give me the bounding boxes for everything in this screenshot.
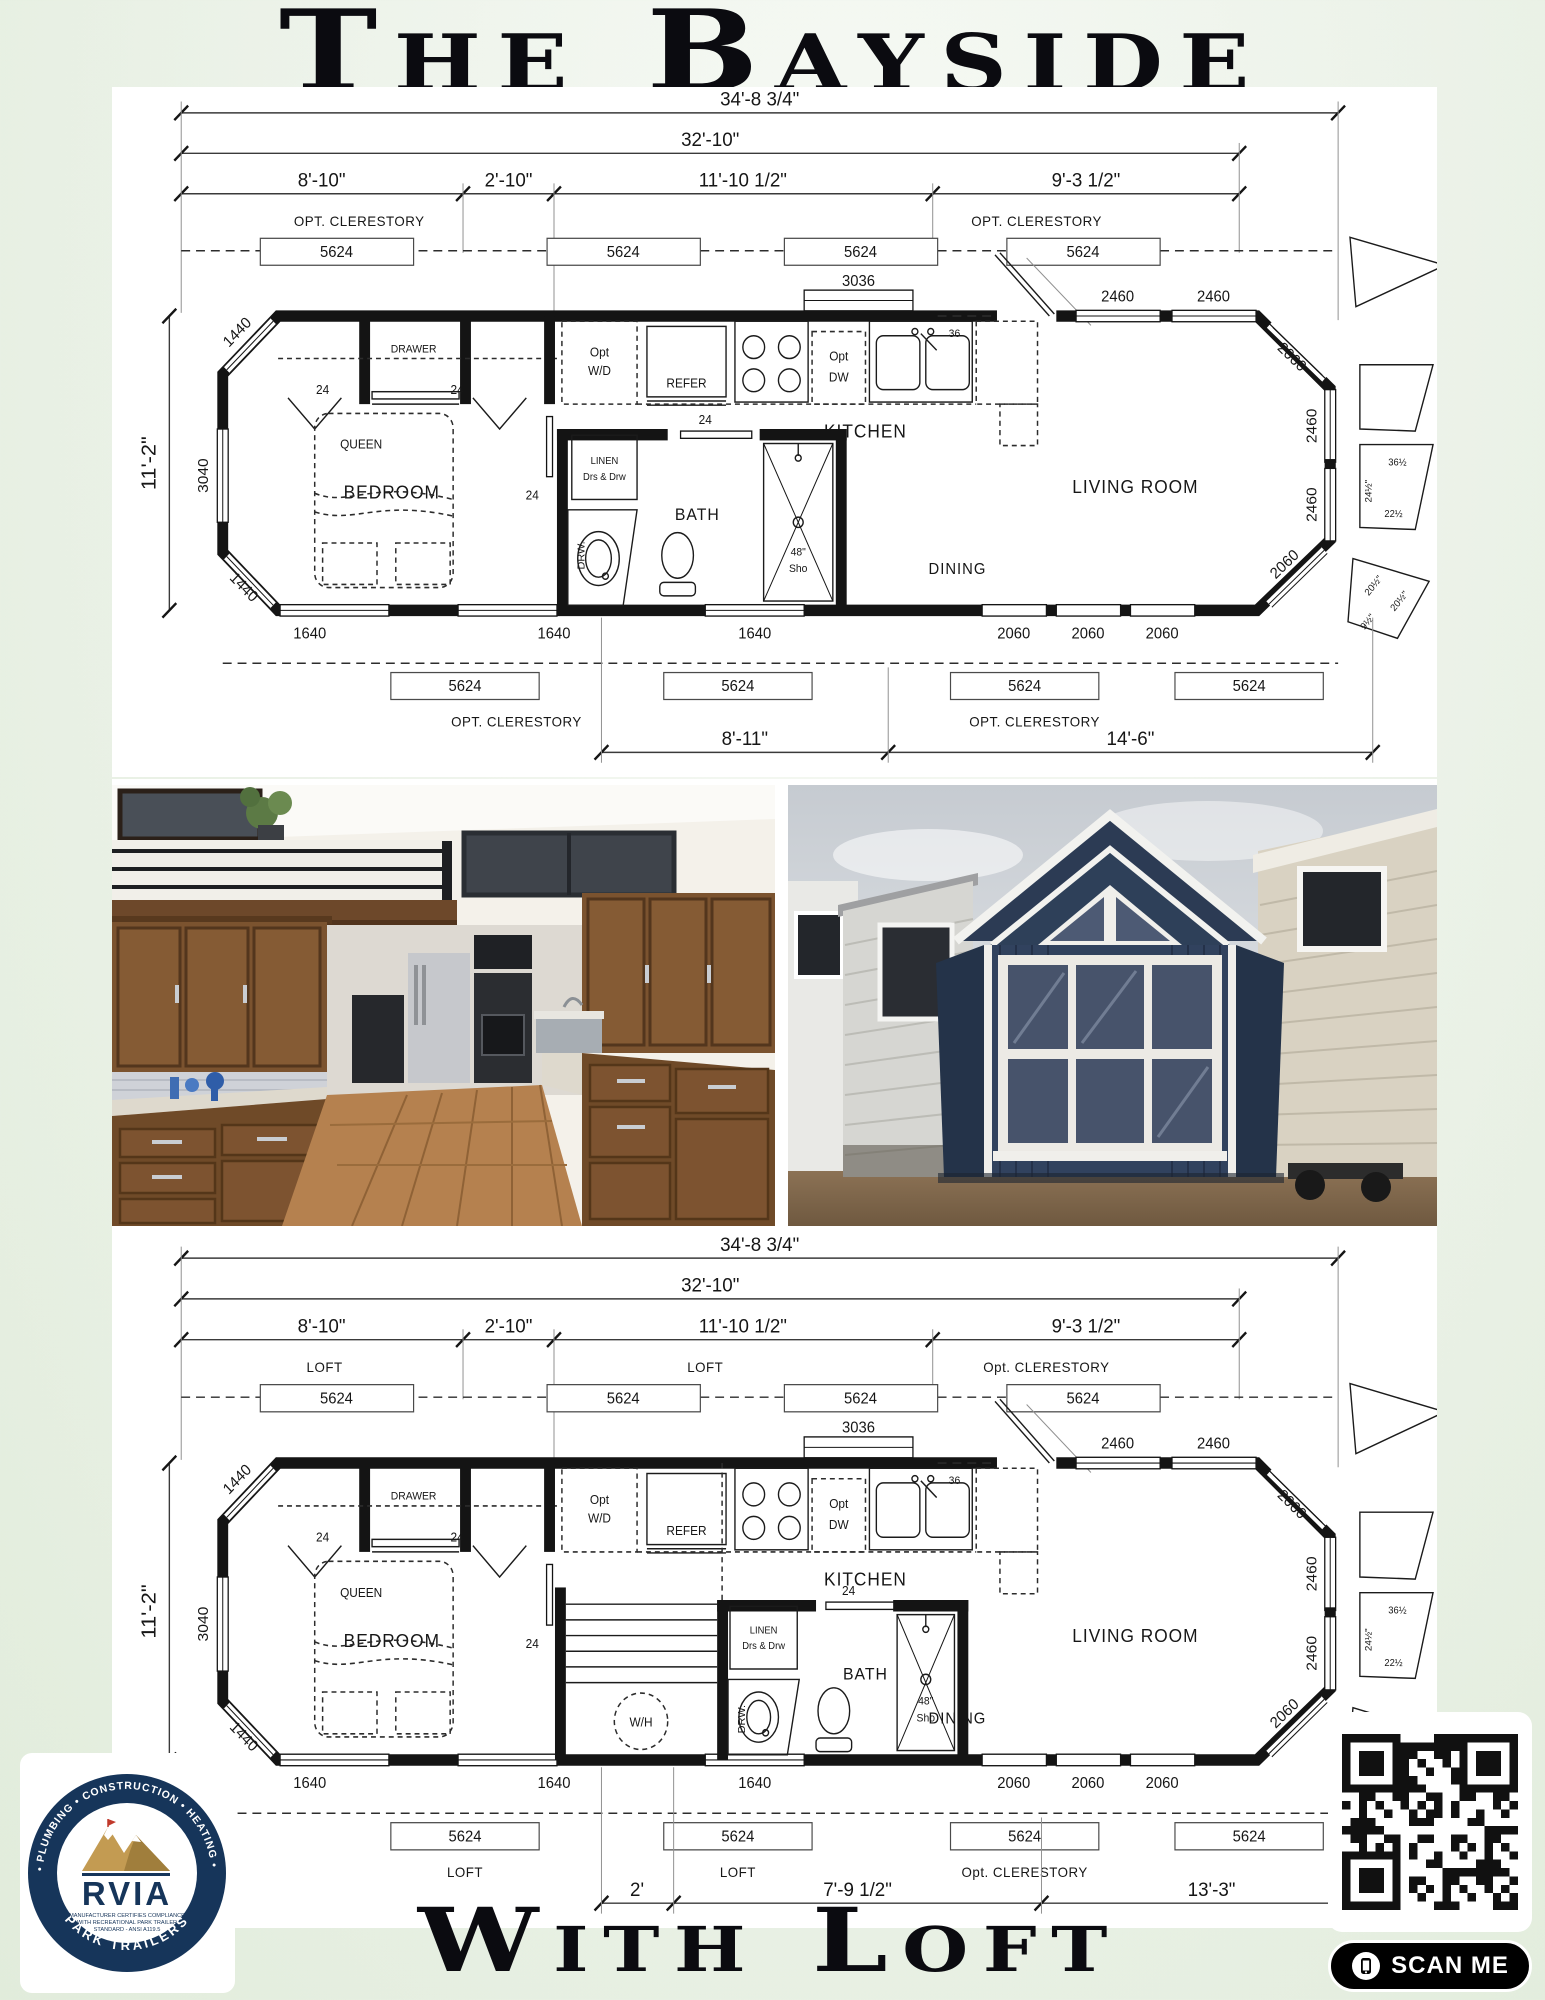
window-size-label: 5624 [844, 244, 877, 261]
room-label-bath: BATH [675, 506, 720, 524]
dim-segment: 8'-10" [298, 1316, 346, 1338]
zone-label: OPT. CLERESTORY [294, 214, 425, 229]
fixture-label-dishwasher: DW [829, 370, 849, 384]
rvia-cert-line: STANDARD - ANSI A119.5 [94, 1927, 161, 1933]
bathroom: 24 48" Sho LINEN Drs & Drw DRW. BATH [717, 1583, 968, 1759]
fixture-label-water-heater: W/H [629, 1715, 652, 1729]
dim-bottom: 14'-6" [1107, 729, 1155, 750]
phone-icon [1351, 1951, 1381, 1981]
bed-label: QUEEN [340, 437, 382, 451]
window-size-label: 5624 [1067, 244, 1100, 261]
window-size-label: 2060 [997, 625, 1030, 642]
window-size-label: 1640 [738, 625, 771, 642]
window-size-label: 5624 [721, 678, 754, 695]
window-size-label: 3040 [195, 1607, 212, 1642]
door-size-label: 36 [949, 1475, 961, 1487]
zone-label: Opt. CLERESTORY [983, 1360, 1109, 1375]
window-size-label: 1440 [226, 1718, 261, 1755]
room-label-living: LIVING ROOM [1072, 477, 1198, 497]
window-size-label: 2460 [1304, 1556, 1321, 1591]
door-size-label: 24 [450, 1530, 463, 1544]
window-size-label: 3040 [195, 458, 212, 493]
door-size-label: 24 [316, 383, 329, 397]
room-label-bedroom: BEDROOM [344, 1631, 440, 1652]
window-size-label: 2460 [1304, 487, 1321, 522]
window-note: 36½ [1388, 1605, 1406, 1616]
fixture-label-shower: 48" [918, 1695, 933, 1707]
photo-strip [112, 779, 1437, 1232]
floor-plan-main: 34'-8 3/4" 32'-10" 8'-10" 2'-10" 11'-10 … [112, 87, 1437, 771]
dimensions-top: 34'-8 3/4" 32'-10" 8'-10" 2'-10" 11'-10 … [174, 1234, 1345, 1467]
fixture-label-linen: Drs & Drw [583, 472, 626, 483]
zone-label: OPT. CLERESTORY [971, 214, 1102, 229]
window-size-label: 5624 [1233, 678, 1266, 695]
window-size-label: 2460 [1101, 1435, 1134, 1452]
window-size-label: 2460 [1304, 409, 1321, 444]
window-size-label: 3036 [842, 273, 875, 290]
dim-segment: 8'-10" [298, 170, 346, 191]
window-note: 22½ [1384, 509, 1402, 520]
door-size-label: 24 [316, 1530, 329, 1544]
zone-label: LOFT [720, 1865, 756, 1880]
fixture-label-linen: LINEN [750, 1625, 778, 1636]
window-size-label: 1440 [226, 569, 261, 606]
fixture-label-drawer: DRAWER [391, 1490, 437, 1502]
qr-code [1342, 1734, 1518, 1910]
dim-inner: 32'-10" [681, 130, 739, 151]
window-size-label: 5624 [1008, 678, 1041, 695]
window-size-label: 2060 [997, 1775, 1030, 1792]
room-label-kitchen: KITCHEN [824, 1569, 907, 1590]
fixture-label-washer: Opt [590, 345, 610, 359]
scan-me-label: SCAN ME [1391, 1952, 1509, 1980]
room-label-bedroom: BEDROOM [344, 482, 440, 502]
fixture-label-drawer: DRAWER [391, 343, 437, 355]
zone-label: OPT. CLERESTORY [451, 714, 582, 729]
window-size-label: 1640 [537, 625, 570, 642]
rvia-name: RVIA [82, 1875, 172, 1912]
dimensions-top: 34'-8 3/4" 32'-10" 8'-10" 2'-10" 11'-10 … [174, 89, 1345, 320]
dim-overall: 34'-8 3/4" [720, 89, 799, 110]
interior: DRAWER 24 24 24 Opt W/D REFER Opt DW KIT… [278, 1463, 1198, 1760]
window-note: 24½" [1364, 480, 1375, 503]
window-size-label: 2460 [1197, 1435, 1230, 1452]
stairs: W/H [555, 1463, 722, 1760]
wood-floor [282, 1085, 582, 1226]
window-size-label: 2060 [1146, 1775, 1179, 1792]
fixture-label-shower: Sho [917, 1712, 936, 1724]
qr-code-box [1328, 1712, 1532, 1932]
zone-label: LOFT [687, 1360, 723, 1375]
window-size-label: 5624 [449, 678, 482, 695]
floor-plan-panel-main: 34'-8 3/4" 32'-10" 8'-10" 2'-10" 11'-10 … [112, 87, 1437, 777]
fixture-label-refrigerator: REFER [666, 376, 706, 390]
clerestory-row-top: OPT. CLERESTORY OPT. CLERESTORY 5624 562… [181, 214, 1338, 326]
window-size-label: 2460 [1101, 288, 1134, 305]
loft-row-top: LOFT LOFT Opt. CLERESTORY 5624 5624 5624… [181, 1360, 1338, 1473]
kitchen-interior-photo [112, 785, 775, 1226]
window-size-label: 2460 [1304, 1636, 1321, 1671]
floor-plan-loft: 34'-8 3/4" 32'-10" 8'-10" 2'-10" 11'-10 … [112, 1232, 1437, 1922]
window-size-label: 2060 [1146, 625, 1179, 642]
fixture-label-linen: Drs & Drw [742, 1641, 785, 1652]
window-size-label: 1640 [293, 1775, 326, 1792]
dim-side: 11'-2" [137, 1584, 160, 1638]
window-size-label: 5624 [844, 1390, 877, 1407]
fixture-label-dishwasher: DW [829, 1518, 849, 1532]
door-size-label: 24 [842, 1583, 855, 1597]
dim-segment: 11'-10 1/2" [699, 1316, 787, 1338]
window-size-label: 1640 [293, 625, 326, 642]
room-label-dining: DINING [929, 561, 987, 578]
interior: DRAWER 24 24 24 Opt W/D REFER Opt DW KIT… [278, 316, 1198, 610]
dim-inner: 32'-10" [681, 1275, 739, 1297]
window-size-label: 5624 [607, 1390, 640, 1407]
window-note: 9½" [1359, 612, 1378, 632]
dim-segment: 9'-3 1/2" [1052, 170, 1121, 191]
door-size-label: 24 [450, 383, 463, 397]
door-size-label: 24 [526, 488, 539, 502]
window-note: 20½" [1388, 589, 1410, 614]
bay-windows [998, 955, 1222, 1153]
zone-label: OPT. CLERESTORY [969, 714, 1100, 729]
room-label-living: LIVING ROOM [1072, 1625, 1198, 1646]
dim-segment: 9'-3 1/2" [1052, 1316, 1121, 1338]
dim-segment: 11'-10 1/2" [699, 170, 787, 191]
window-size-label: 2060 [1071, 625, 1104, 642]
door-size-label: 24 [699, 413, 712, 427]
fixture-label-washer: W/D [588, 1511, 611, 1525]
fixture-label-dishwasher: Opt [829, 349, 849, 363]
footer-title: With Loft [160, 1888, 1380, 1992]
window-size-label: 1640 [538, 1775, 571, 1792]
zone-label: Opt. CLERESTORY [962, 1865, 1088, 1880]
dim-bottom: 8'-11" [722, 729, 769, 750]
fixture-label-washer: Opt [590, 1493, 610, 1507]
fixture-label-shower: Sho [789, 563, 808, 575]
dim-side: 11'-2" [137, 436, 160, 490]
window-size-label: 2460 [1197, 288, 1230, 305]
zone-label: LOFT [307, 1360, 343, 1375]
fixture-label-shower: 48" [791, 546, 806, 558]
fixture-label-refrigerator: REFER [666, 1524, 706, 1538]
dim-segment: 2'-10" [485, 170, 533, 191]
window-size-label: 3036 [842, 1419, 875, 1436]
window-size-label: 5624 [320, 1390, 353, 1407]
bathroom: 24 48" Sho LINEN Drs & Drw DRW. BATH [557, 413, 847, 611]
floor-plan-panel-loft: 34'-8 3/4" 32'-10" 8'-10" 2'-10" 11'-10 … [112, 1232, 1437, 1928]
scan-me-button[interactable]: SCAN ME [1328, 1940, 1532, 1992]
door-size-label: 36 [949, 328, 961, 340]
window-size-label: 2060 [1071, 1775, 1104, 1792]
window-size-label: 5624 [1008, 1828, 1041, 1845]
fixture-label-linen: LINEN [591, 456, 619, 467]
door-size-label: 24 [526, 1637, 539, 1651]
dim-segment: 2'-10" [485, 1316, 533, 1338]
window-note: 36½ [1388, 457, 1406, 468]
window-size-label: 5624 [721, 1828, 754, 1845]
window-size-label: 5624 [1067, 1390, 1100, 1407]
window-size-label: 5624 [449, 1828, 482, 1845]
bed-label: QUEEN [340, 1586, 382, 1600]
window-size-label: 5624 [1233, 1828, 1266, 1845]
window-note: 22½ [1384, 1658, 1402, 1669]
zone-label: LOFT [447, 1865, 483, 1880]
fixture-label-dishwasher: Opt [829, 1497, 849, 1511]
dim-overall: 34'-8 3/4" [720, 1234, 799, 1256]
bay-window-notes: 36½ 24½" 22½ 20½" 20½" 9½" [1348, 237, 1437, 638]
window-note: 24½" [1364, 1628, 1375, 1651]
exterior-photo [788, 785, 1437, 1226]
window-size-label: 5624 [320, 244, 353, 261]
window-size-label: 5624 [607, 244, 640, 261]
dimensions-bottom: 1640 1640 1640 2060 2060 2060 5624 5624 … [223, 618, 1380, 763]
clerestory-window [120, 791, 260, 839]
room-label-bath: BATH [843, 1665, 888, 1683]
window-size-label: 1640 [738, 1775, 771, 1792]
window-note: 20½" [1363, 574, 1385, 599]
fixture-label-washer: W/D [588, 364, 611, 378]
